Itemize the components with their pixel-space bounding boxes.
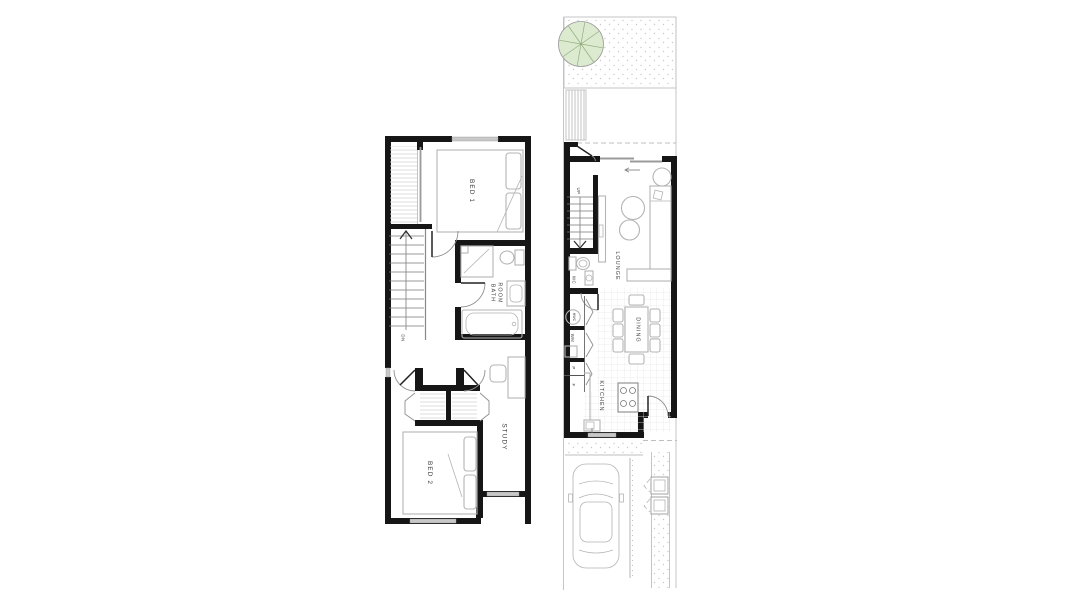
- label-wm: WM: [570, 334, 575, 343]
- porch-stipple: [565, 440, 643, 455]
- label-hwc: HWC: [572, 313, 576, 322]
- cooktop: [618, 383, 638, 412]
- label-pantry: P: [571, 366, 576, 369]
- label-stairs-up: UP: [576, 188, 581, 195]
- car: [569, 464, 624, 568]
- stairs-first-floor: DN: [389, 229, 426, 342]
- bed2-pillow: [464, 437, 476, 471]
- floor-plans-svg: DN BED 1 BATH ROOM: [0, 0, 1084, 602]
- sofa-chaise: [627, 269, 671, 281]
- bed2-bed: [403, 432, 477, 514]
- hall-robes: [394, 370, 489, 421]
- first-floor-plan: DN BED 1 BATH ROOM: [385, 136, 531, 524]
- bed2-room: BED 2: [403, 432, 477, 514]
- study-room: STUDY: [490, 357, 525, 451]
- wc-toilet: [577, 258, 590, 270]
- dining-chair: [613, 324, 623, 337]
- parking-area: [565, 440, 677, 588]
- wc-door-arc: [581, 293, 598, 310]
- bed1-bed: [437, 150, 523, 232]
- wc-cistern: [569, 257, 576, 270]
- deck: [566, 90, 586, 140]
- bed1-pillow: [506, 193, 521, 229]
- label-kitchen: KITCHEN: [598, 380, 604, 411]
- label-bed1: BED 1: [468, 179, 475, 203]
- label-stairs-down: DN: [401, 334, 406, 341]
- dining-chair: [613, 339, 623, 352]
- label-bathroom-line2: ROOM: [497, 282, 503, 303]
- desk: [508, 357, 525, 398]
- floor-plan-sheet: DN BED 1 BATH ROOM: [0, 0, 1084, 602]
- dining-chair: [650, 309, 660, 322]
- label-dining: DINING: [635, 317, 641, 342]
- bathtub: [462, 310, 522, 338]
- bathroom-door-arc: [461, 283, 485, 307]
- tree: [559, 22, 604, 67]
- label-fridge: F: [571, 383, 576, 386]
- lounge-area: LOUNGE: [614, 168, 671, 281]
- dining-chair: [613, 309, 623, 322]
- shower: [461, 246, 493, 277]
- dining-chair: [650, 339, 660, 352]
- bed2-pillow: [464, 475, 476, 509]
- robe: [452, 393, 477, 420]
- side-strip-stipple: [652, 452, 669, 588]
- dining-chair: [650, 324, 660, 337]
- wardrobe: [390, 142, 423, 224]
- label-wc: WC: [572, 276, 577, 284]
- dining-chair: [629, 295, 644, 305]
- bathroom: BATH ROOM: [461, 246, 525, 338]
- robe: [420, 393, 445, 420]
- bed1-door-arc: [432, 231, 458, 257]
- toilet: [500, 251, 514, 264]
- round-chair: [653, 168, 671, 186]
- sliding-door: [600, 159, 662, 173]
- ground-floor-plan: UP WC HWC WM P F: [559, 17, 678, 590]
- label-lounge: LOUNGE: [614, 251, 620, 280]
- desk-chair: [490, 365, 506, 382]
- label-bathroom-line1: BATH: [490, 284, 496, 302]
- tv-unit: [599, 196, 606, 262]
- coffee-table: [622, 197, 645, 220]
- label-study: STUDY: [501, 423, 508, 450]
- label-bed2: BED 2: [426, 461, 433, 485]
- dining-chair: [629, 354, 644, 364]
- coffee-table: [620, 220, 640, 240]
